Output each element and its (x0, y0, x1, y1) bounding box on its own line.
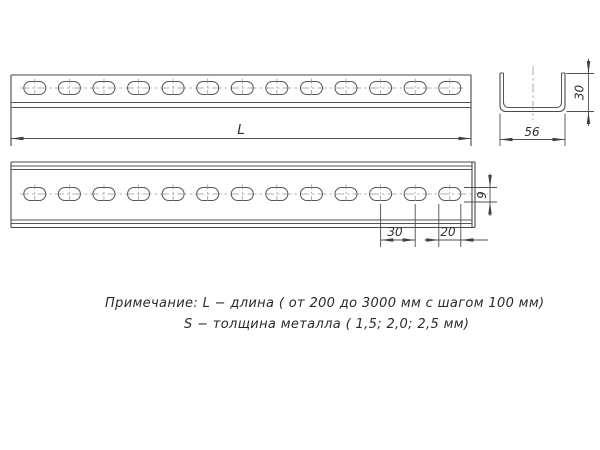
length-dimension-label: L (237, 122, 245, 138)
slot-length-label: 20 (440, 225, 456, 239)
section-inner-contour (504, 73, 562, 108)
length-dimension: L (11, 122, 471, 139)
front-view (11, 162, 488, 228)
drawing-canvas: L 30 20 9 30 (0, 0, 600, 450)
note-line-1: Примечание: L − длина ( от 200 до 3000 м… (105, 296, 544, 311)
top-view-bend-lines (11, 103, 471, 108)
section-width-label: 56 (524, 125, 540, 139)
technical-drawing: L 30 20 9 30 (0, 0, 600, 450)
note-line-2: S − толщина металла ( 1,5; 2,0; 2,5 мм) (184, 317, 469, 332)
slot-height-label: 9 (475, 191, 489, 199)
section-outer-contour (500, 73, 565, 112)
slot-pitch-label: 30 (387, 225, 403, 239)
section-height-label: 30 (573, 85, 587, 101)
slot-height-dimension: 9 (464, 174, 497, 217)
cross-section-view (500, 66, 565, 120)
section-height-dimension: 30 (567, 59, 595, 127)
note: Примечание: L − длина ( от 200 до 3000 м… (105, 296, 544, 332)
section-width-dimension: 56 (500, 114, 565, 147)
